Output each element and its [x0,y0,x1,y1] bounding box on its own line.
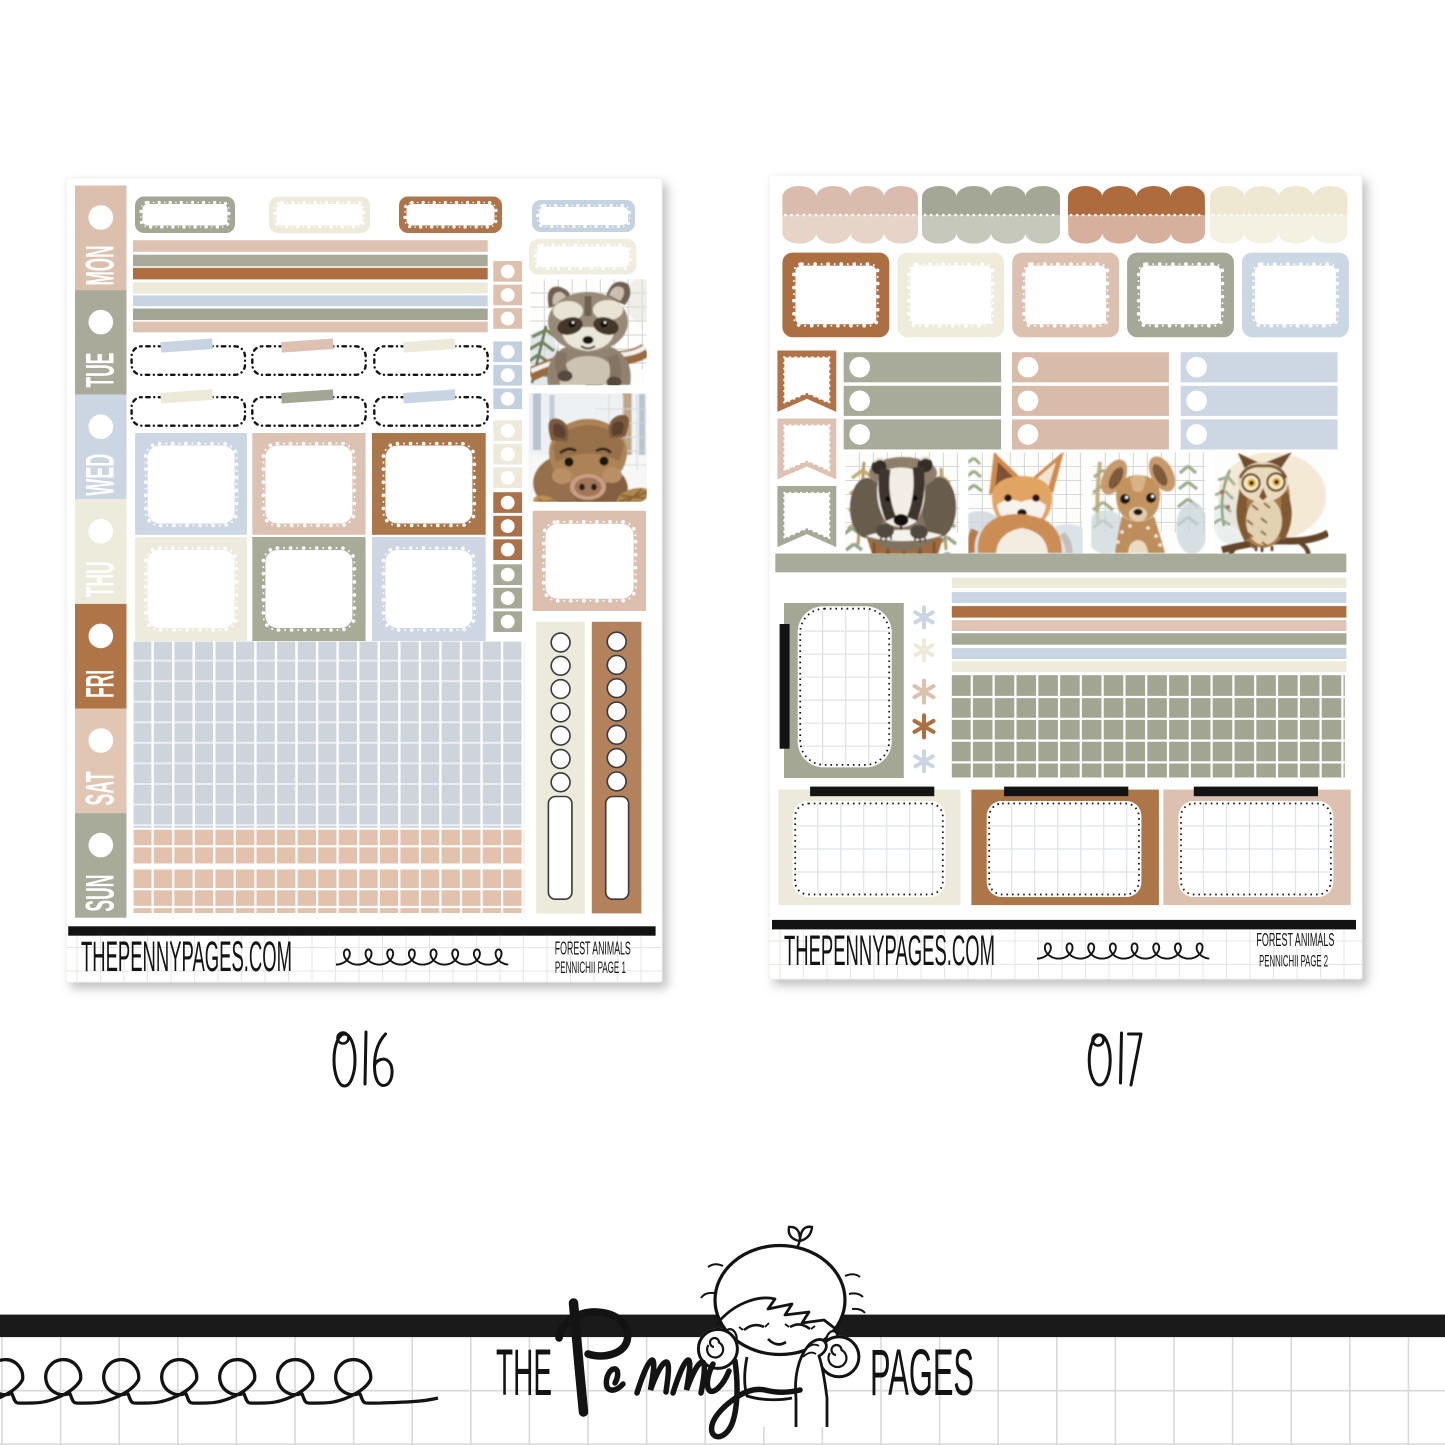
svg-text:PAGES: PAGES [870,1335,974,1409]
svg-text:THEPENNYPAGES.COM: THEPENNYPAGES.COM [81,933,292,981]
svg-text:PENNICHII PAGE 2: PENNICHII PAGE 2 [1259,952,1328,971]
svg-text:THEPENNYPAGES.COM: THEPENNYPAGES.COM [784,927,995,975]
svg-text:MON: MON [79,246,123,286]
svg-text:THU: THU [79,561,123,597]
svg-text:FOREST ANIMALS: FOREST ANIMALS [1256,930,1334,950]
svg-text:FRI: FRI [79,670,123,698]
svg-text:TUE: TUE [79,353,123,388]
svg-text:SAT: SAT [79,772,123,806]
svg-text:SUN: SUN [79,875,123,912]
svg-text:FOREST ANIMALS: FOREST ANIMALS [555,939,631,959]
svg-text:WED: WED [79,454,123,496]
svg-text:PENNICHII PAGE 1: PENNICHII PAGE 1 [555,958,626,977]
svg-text:THE: THE [496,1335,552,1409]
